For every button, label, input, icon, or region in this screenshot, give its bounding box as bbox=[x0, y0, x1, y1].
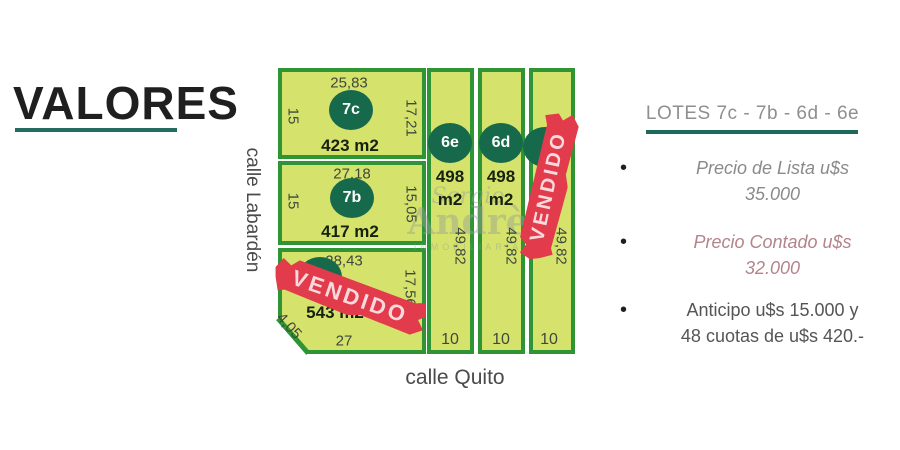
lot-7c-badge: 7c bbox=[329, 90, 373, 130]
infographic-canvas: VALORES calle Labardén calle Quito Sergi… bbox=[0, 0, 900, 450]
lot-7c-area: 423 m2 bbox=[321, 136, 379, 156]
lot-corner-dim-bottom: 27 bbox=[336, 333, 353, 350]
lot-6d-area-line1: 498 bbox=[487, 167, 515, 187]
page-title: VALORES bbox=[13, 76, 239, 130]
cash-price-line2: 32.000 bbox=[645, 255, 900, 281]
list-price-line2: 35.000 bbox=[645, 181, 900, 207]
lot-7c-dim-right: 17,21 bbox=[403, 99, 420, 137]
bullet-financing: • Anticipo u$s 15.000 y 48 cuotas de u$s… bbox=[620, 297, 900, 349]
bullet-icon: • bbox=[620, 297, 645, 323]
lot-6e-area-line1: 498 bbox=[436, 167, 464, 187]
bullet-icon: • bbox=[620, 229, 645, 255]
lot-7c-number: 7c bbox=[342, 101, 360, 119]
lot-strip-dim-bottom: 10 bbox=[540, 331, 558, 349]
lot-7c-dim-top: 25,83 bbox=[330, 75, 368, 92]
cash-price-line1: Precio Contado u$s bbox=[645, 229, 900, 255]
title-underline bbox=[15, 128, 177, 132]
lot-6d-dim-side: 49,82 bbox=[503, 227, 520, 265]
lot-6d-number: 6d bbox=[492, 134, 511, 152]
lot-7c-dim-left: 15 bbox=[285, 108, 302, 125]
lot-6d-badge: 6d bbox=[479, 123, 523, 163]
lot-7b-dim-right: 15,05 bbox=[403, 185, 420, 223]
lot-6d-area-line2: m2 bbox=[489, 190, 514, 210]
street-label-quito: calle Quito bbox=[330, 366, 580, 390]
panel-heading: LOTES 7c - 7b - 6d - 6e bbox=[645, 103, 860, 125]
lot-6e-area-line2: m2 bbox=[438, 190, 463, 210]
financing-line1: Anticipo u$s 15.000 y bbox=[645, 297, 900, 323]
lot-6e-dim-bottom: 10 bbox=[441, 331, 459, 349]
lot-7b-area: 417 m2 bbox=[321, 222, 379, 242]
list-price-line1: Precio de Lista u$s bbox=[645, 155, 900, 181]
bullet-list-price: • Precio de Lista u$s 35.000 bbox=[620, 155, 900, 207]
lot-6d-dim-bottom: 10 bbox=[492, 331, 510, 349]
bullet-cash-price: • Precio Contado u$s 32.000 bbox=[620, 229, 900, 281]
lot-6e-badge: 6e bbox=[428, 123, 472, 163]
bullet-icon: • bbox=[620, 155, 645, 181]
panel-heading-underline bbox=[646, 130, 858, 134]
lot-7b-number: 7b bbox=[343, 189, 362, 207]
lot-7b-badge: 7b bbox=[330, 178, 374, 218]
lot-6e-dim-side: 49,82 bbox=[452, 227, 469, 265]
lot-6e-number: 6e bbox=[441, 134, 459, 152]
street-label-labarden: calle Labardén bbox=[243, 130, 263, 290]
lot-7b-dim-left: 15 bbox=[285, 193, 302, 210]
financing-line2: 48 cuotas de u$s 420.- bbox=[645, 323, 900, 349]
